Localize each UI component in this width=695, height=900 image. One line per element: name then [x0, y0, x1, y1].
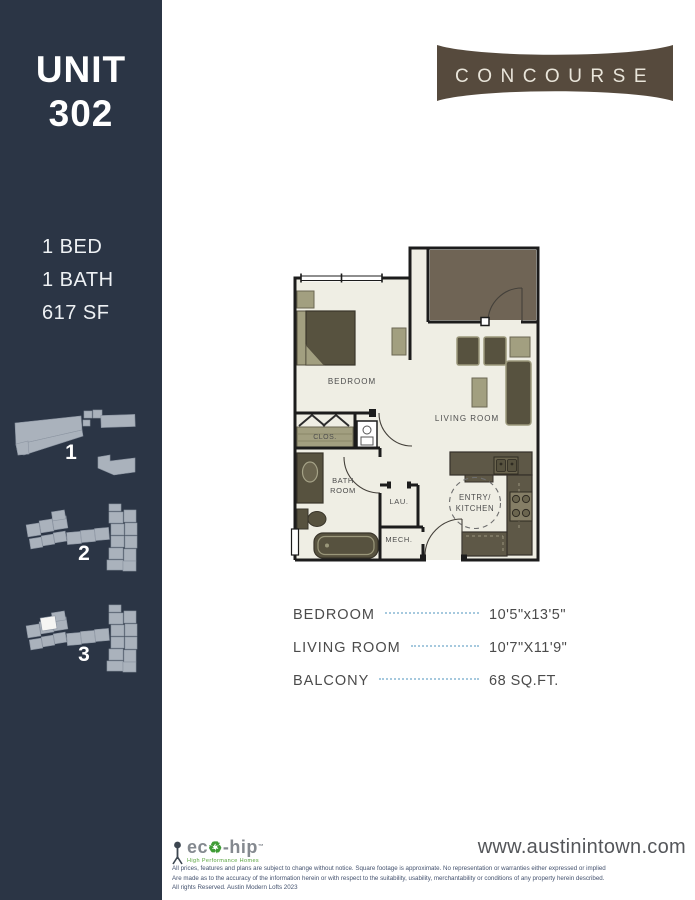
dimension-room-label: BALCONY [293, 673, 369, 689]
legal-disclaimer: All prices, features and plans are subje… [172, 864, 692, 893]
mech-label: MECH. [385, 535, 412, 544]
nightstand [297, 291, 314, 308]
building-level-1-number: 1 [65, 441, 77, 464]
disclaimer-line-1: All prices, features and plans are subje… [172, 864, 692, 874]
room-dimensions-list: BEDROOM 10'5"x13'5" LIVING ROOM 10'7"X11… [293, 604, 577, 703]
living-room-label: LIVING ROOM [435, 414, 499, 423]
bathtub-drain [325, 544, 329, 548]
floor-plan: BEDROOM LIVING ROOM CLOS. BATH ROOM LAU.… [285, 245, 585, 595]
toilet-tank [297, 509, 308, 529]
armchair-2 [484, 337, 506, 365]
laundry-label: LAU. [389, 497, 408, 506]
building-level-3-icon: 3 [14, 603, 138, 673]
unit-word: UNIT [0, 48, 162, 92]
laundry-jamb-right [407, 482, 411, 489]
dimension-room-label: LIVING ROOM [293, 640, 401, 656]
entry-jamb-right [461, 555, 467, 562]
bath-window [292, 529, 299, 555]
dotted-leader [385, 612, 479, 614]
trademark-symbol: ™ [258, 844, 265, 850]
spec-sqft: 617 SF [42, 297, 114, 330]
toilet-bowl [308, 512, 326, 527]
unit-title: UNIT 302 [0, 48, 162, 136]
bath-sink [303, 462, 318, 482]
bed-headboard [297, 311, 306, 365]
unit-302-highlight [40, 616, 57, 631]
eco-text-right: -hip [223, 837, 258, 857]
dotted-leader [379, 678, 479, 680]
building-level-3-number: 3 [78, 643, 90, 666]
building-level-1-icon: 1 [10, 408, 144, 484]
coffee-table [472, 378, 487, 407]
side-table [510, 337, 530, 357]
building-level-2-thumbnail: 2 [14, 502, 138, 572]
bath-label-line1: BATH [332, 476, 354, 485]
dimension-row-living-room: LIVING ROOM 10'7"X11'9" [293, 637, 577, 659]
balcony-area [430, 250, 536, 320]
bedroom-label: BEDROOM [328, 377, 376, 386]
kitchen-counter-stub [465, 475, 493, 482]
spec-baths: 1 BATH [42, 264, 114, 297]
dimension-row-bedroom: BEDROOM 10'5"x13'5" [293, 604, 577, 626]
sink-basin-right [508, 460, 517, 472]
dimension-room-label: BEDROOM [293, 607, 375, 623]
entry-label-line1: ENTRY/ [459, 493, 491, 502]
eco-hip-mark-icon [172, 841, 183, 865]
dotted-leader [411, 645, 479, 647]
bath-label-line2: ROOM [330, 486, 356, 495]
closet-label: CLOS. [313, 434, 337, 441]
building-level-2-icon: 2 [14, 502, 138, 572]
entry-label-line2: KITCHEN [456, 504, 494, 513]
unit-specs: 1 BED 1 BATH 617 SF [42, 231, 114, 330]
eco-hip-wordmark: ec♻-hip™ [187, 838, 264, 858]
sink-basin-left [497, 460, 506, 472]
sink-drain-right [511, 463, 514, 466]
concourse-logo-text: CONCOURSE [455, 66, 655, 87]
laundry-jamb-left [387, 482, 391, 489]
building-level-1-thumbnail: 1 [10, 408, 144, 484]
spec-beds: 1 BED [42, 231, 114, 264]
dimension-value: 68 SQ.FT. [489, 673, 577, 689]
sofa [506, 361, 531, 425]
dimension-row-balcony: BALCONY 68 SQ.FT. [293, 670, 577, 692]
dimension-value: 10'7"X11'9" [489, 640, 577, 656]
concourse-logo: CONCOURSE [437, 45, 673, 101]
sidebar: UNIT 302 1 BED 1 BATH 617 SF 1 2 [0, 0, 162, 900]
sink-drain-left [500, 463, 503, 466]
building-level-3-thumbnail: 3 [14, 603, 138, 673]
bedroom-door-jamb [369, 409, 376, 417]
dresser [392, 328, 406, 355]
building-level-2-number: 2 [78, 542, 90, 565]
dimension-value: 10'5"x13'5" [489, 607, 577, 623]
eco-text-left: ec [187, 837, 208, 857]
entry-jamb-left [420, 555, 426, 562]
disclaimer-line-3: All rights Reserved. Austin Modern Lofts… [172, 883, 692, 893]
kitchen-counter-top [450, 452, 532, 475]
recycle-icon: ♻ [208, 840, 223, 857]
balcony-door-stop [481, 318, 489, 326]
unit-number: 302 [0, 92, 162, 136]
eco-hip-logo: ec♻-hip™ High Performance Homes [172, 838, 264, 865]
website-url-link[interactable]: www.austinintown.com [478, 836, 686, 859]
disclaimer-line-2: Are made as to the accuracy of the infor… [172, 874, 692, 884]
armchair-1 [457, 337, 479, 365]
